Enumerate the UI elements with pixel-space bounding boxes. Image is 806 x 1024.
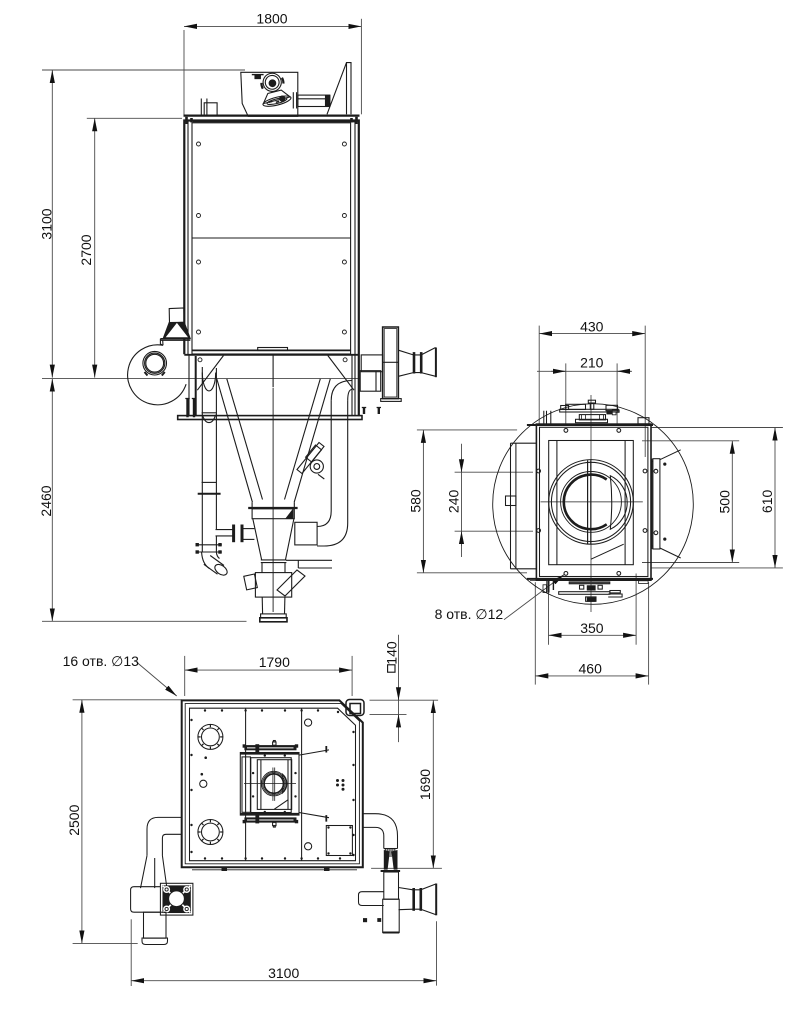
svg-text:430: 430	[580, 318, 604, 334]
svg-text:210: 210	[580, 355, 604, 371]
svg-text:16 отв. ∅13: 16 отв. ∅13	[63, 653, 140, 669]
svg-text:610: 610	[759, 490, 775, 514]
svg-text:3100: 3100	[39, 208, 55, 239]
svg-text:8 отв. ∅12: 8 отв. ∅12	[435, 606, 504, 622]
svg-text:1790: 1790	[259, 654, 290, 670]
svg-text:350: 350	[580, 620, 604, 636]
svg-text:3100: 3100	[268, 965, 299, 981]
svg-text:2700: 2700	[78, 234, 94, 265]
svg-text:2500: 2500	[66, 804, 82, 835]
svg-text:140: 140	[383, 641, 399, 665]
svg-text:500: 500	[716, 490, 732, 514]
svg-text:460: 460	[579, 661, 603, 677]
svg-text:1800: 1800	[256, 11, 287, 27]
svg-text:580: 580	[408, 489, 424, 513]
svg-text:240: 240	[446, 490, 462, 514]
svg-text:1690: 1690	[417, 769, 433, 800]
svg-text:2460: 2460	[38, 485, 54, 516]
